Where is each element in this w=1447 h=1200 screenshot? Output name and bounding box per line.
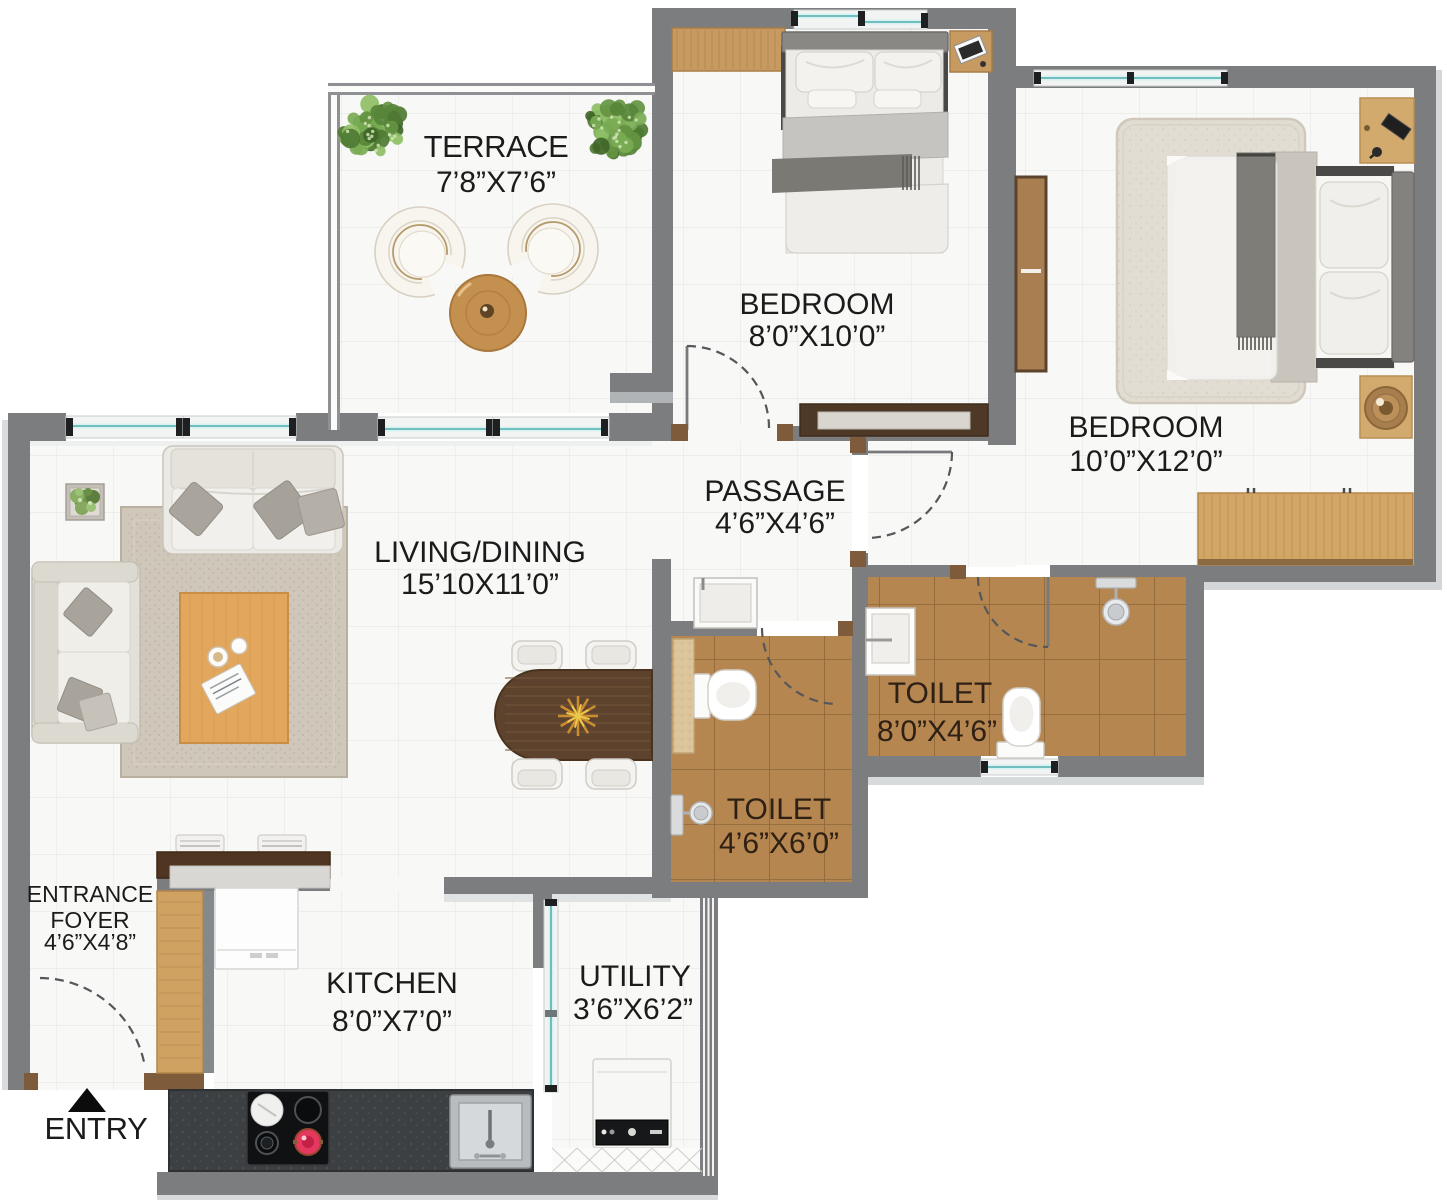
svg-text:15’10X11’0”: 15’10X11’0” bbox=[401, 568, 559, 601]
svg-text:PASSAGE: PASSAGE bbox=[704, 475, 845, 508]
svg-text:3’6”X6’2”: 3’6”X6’2” bbox=[573, 993, 693, 1026]
svg-text:ENTRANCE: ENTRANCE bbox=[27, 881, 154, 907]
svg-text:TOILET: TOILET bbox=[727, 793, 831, 826]
svg-text:8’0”X7’0”: 8’0”X7’0” bbox=[332, 1005, 452, 1038]
svg-text:BEDROOM: BEDROOM bbox=[1068, 411, 1223, 444]
svg-text:4’6”X6’0”: 4’6”X6’0” bbox=[719, 827, 839, 860]
svg-text:10’0”X12’0”: 10’0”X12’0” bbox=[1069, 445, 1222, 478]
svg-text:4’6”X4’8”: 4’6”X4’8” bbox=[44, 929, 136, 955]
svg-text:8’0”X10’0”: 8’0”X10’0” bbox=[749, 320, 886, 353]
svg-text:7’8”X7’6”: 7’8”X7’6” bbox=[436, 166, 556, 199]
svg-text:BEDROOM: BEDROOM bbox=[739, 288, 894, 321]
svg-text:8’0”X4’6”: 8’0”X4’6” bbox=[877, 715, 997, 748]
svg-text:4’6”X4’6”: 4’6”X4’6” bbox=[715, 507, 835, 540]
svg-text:TOILET: TOILET bbox=[888, 677, 992, 710]
svg-text:TERRACE: TERRACE bbox=[424, 129, 569, 164]
svg-text:ENTRY: ENTRY bbox=[44, 1111, 147, 1146]
svg-text:LIVING/DINING: LIVING/DINING bbox=[374, 536, 586, 569]
svg-text:KITCHEN: KITCHEN bbox=[326, 967, 458, 1000]
svg-text:UTILITY: UTILITY bbox=[579, 960, 691, 993]
